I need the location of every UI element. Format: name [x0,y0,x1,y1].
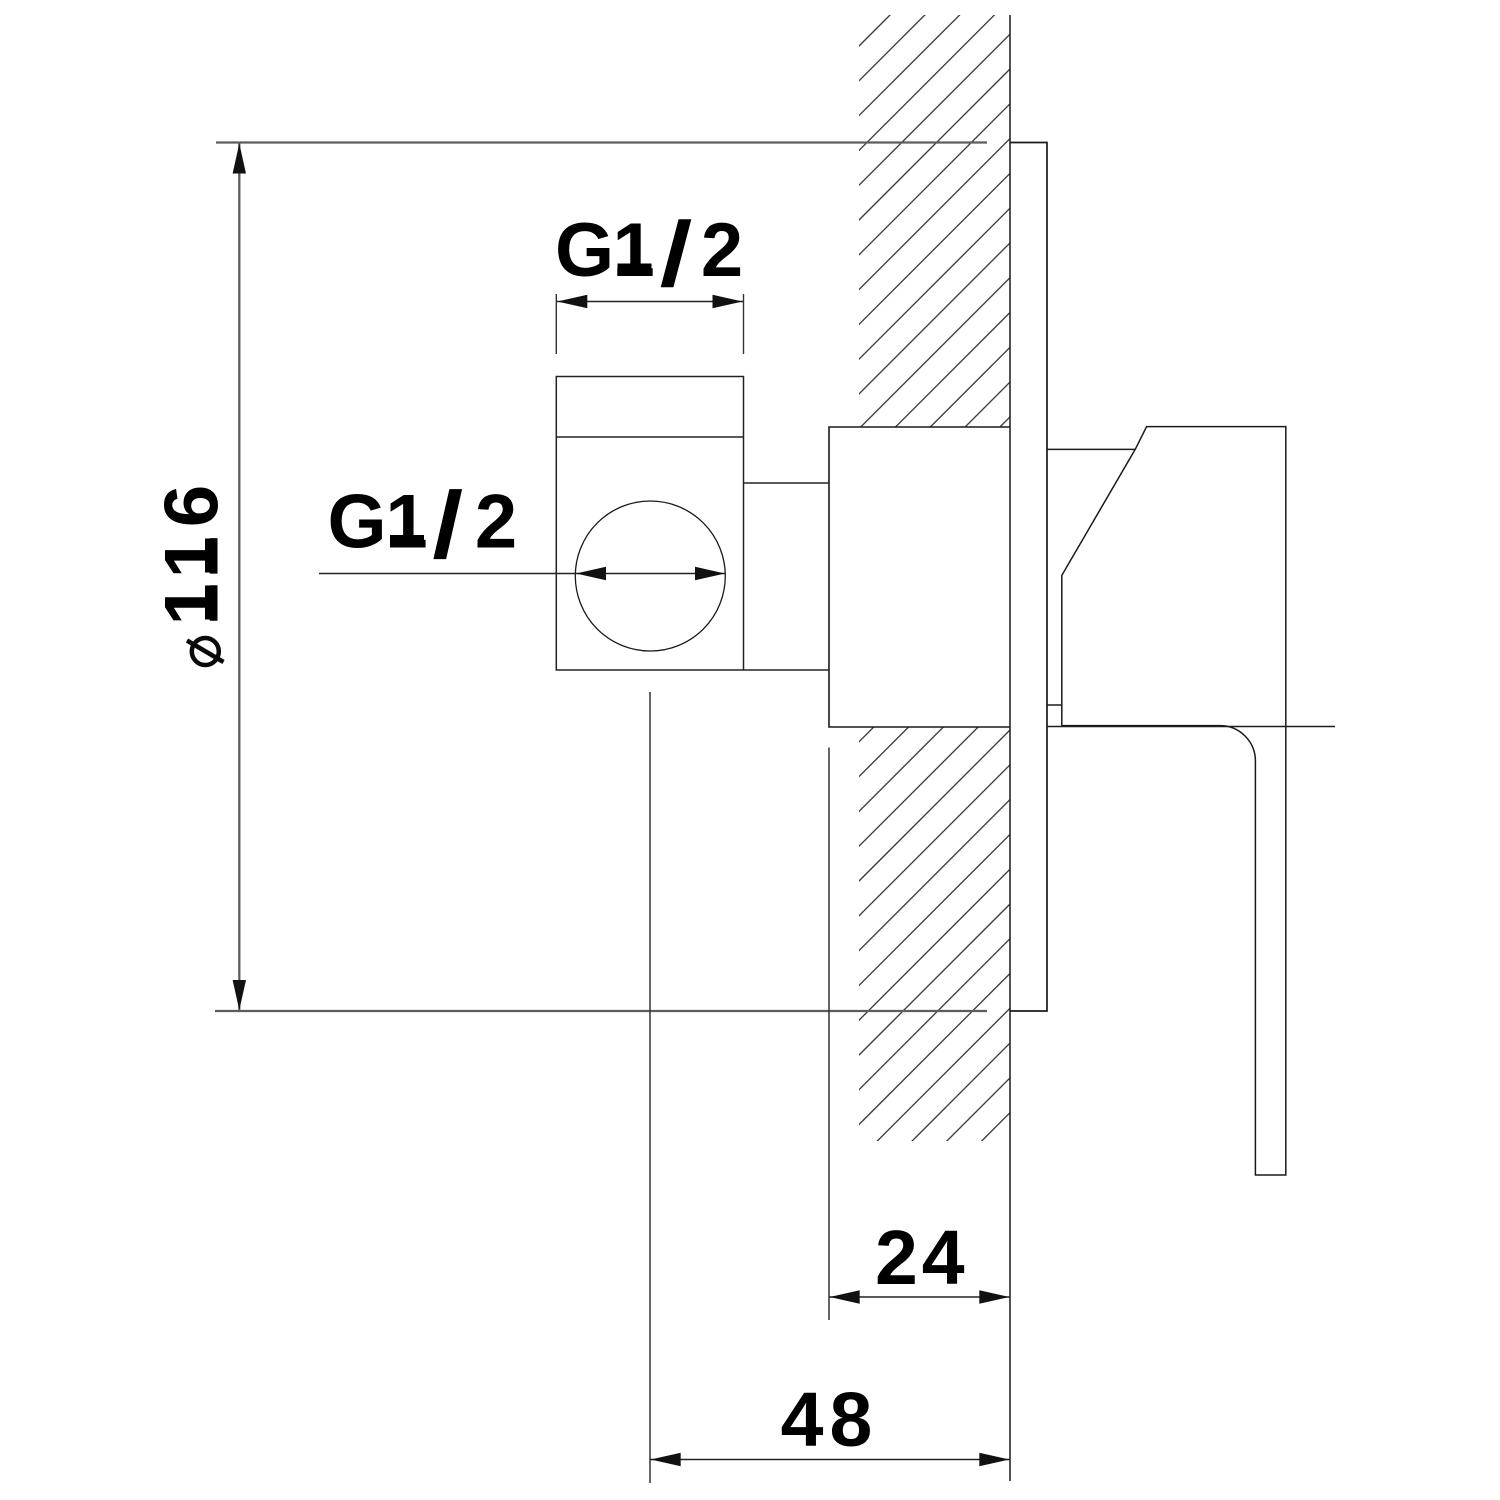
svg-text:G: G [328,480,387,565]
svg-text:24: 24 [875,1215,969,1301]
svg-text:48: 48 [781,1377,879,1463]
svg-text:2: 2 [475,480,517,565]
svg-text:2: 2 [701,208,743,293]
svg-text:G: G [555,208,614,293]
svg-text:1: 1 [385,480,427,565]
svg-text:116: 116 [150,476,235,626]
svg-text:1: 1 [613,208,655,293]
